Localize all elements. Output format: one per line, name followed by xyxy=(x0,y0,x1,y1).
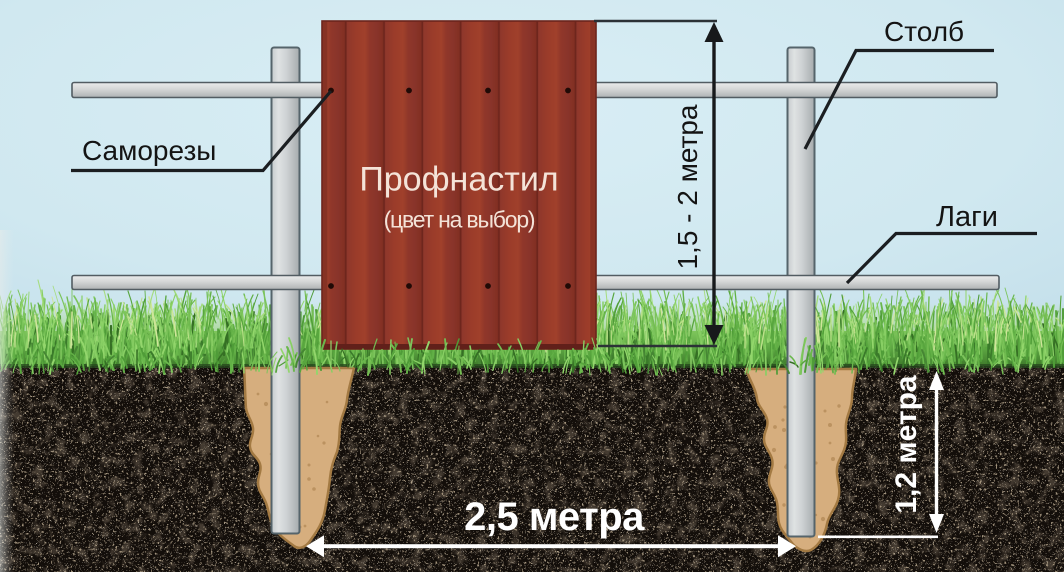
svg-text:2,5 метра: 2,5 метра xyxy=(464,495,645,539)
svg-text:1,2 метра: 1,2 метра xyxy=(890,375,923,514)
svg-text:Столб: Столб xyxy=(884,16,964,47)
svg-text:1,5 - 2 метра: 1,5 - 2 метра xyxy=(672,104,703,269)
svg-text:Лаги: Лаги xyxy=(936,201,998,233)
svg-text:Профнастил: Профнастил xyxy=(359,161,558,199)
svg-text:(цвет на выбор): (цвет на выбор) xyxy=(384,207,535,233)
svg-text:Саморезы: Саморезы xyxy=(82,135,216,166)
